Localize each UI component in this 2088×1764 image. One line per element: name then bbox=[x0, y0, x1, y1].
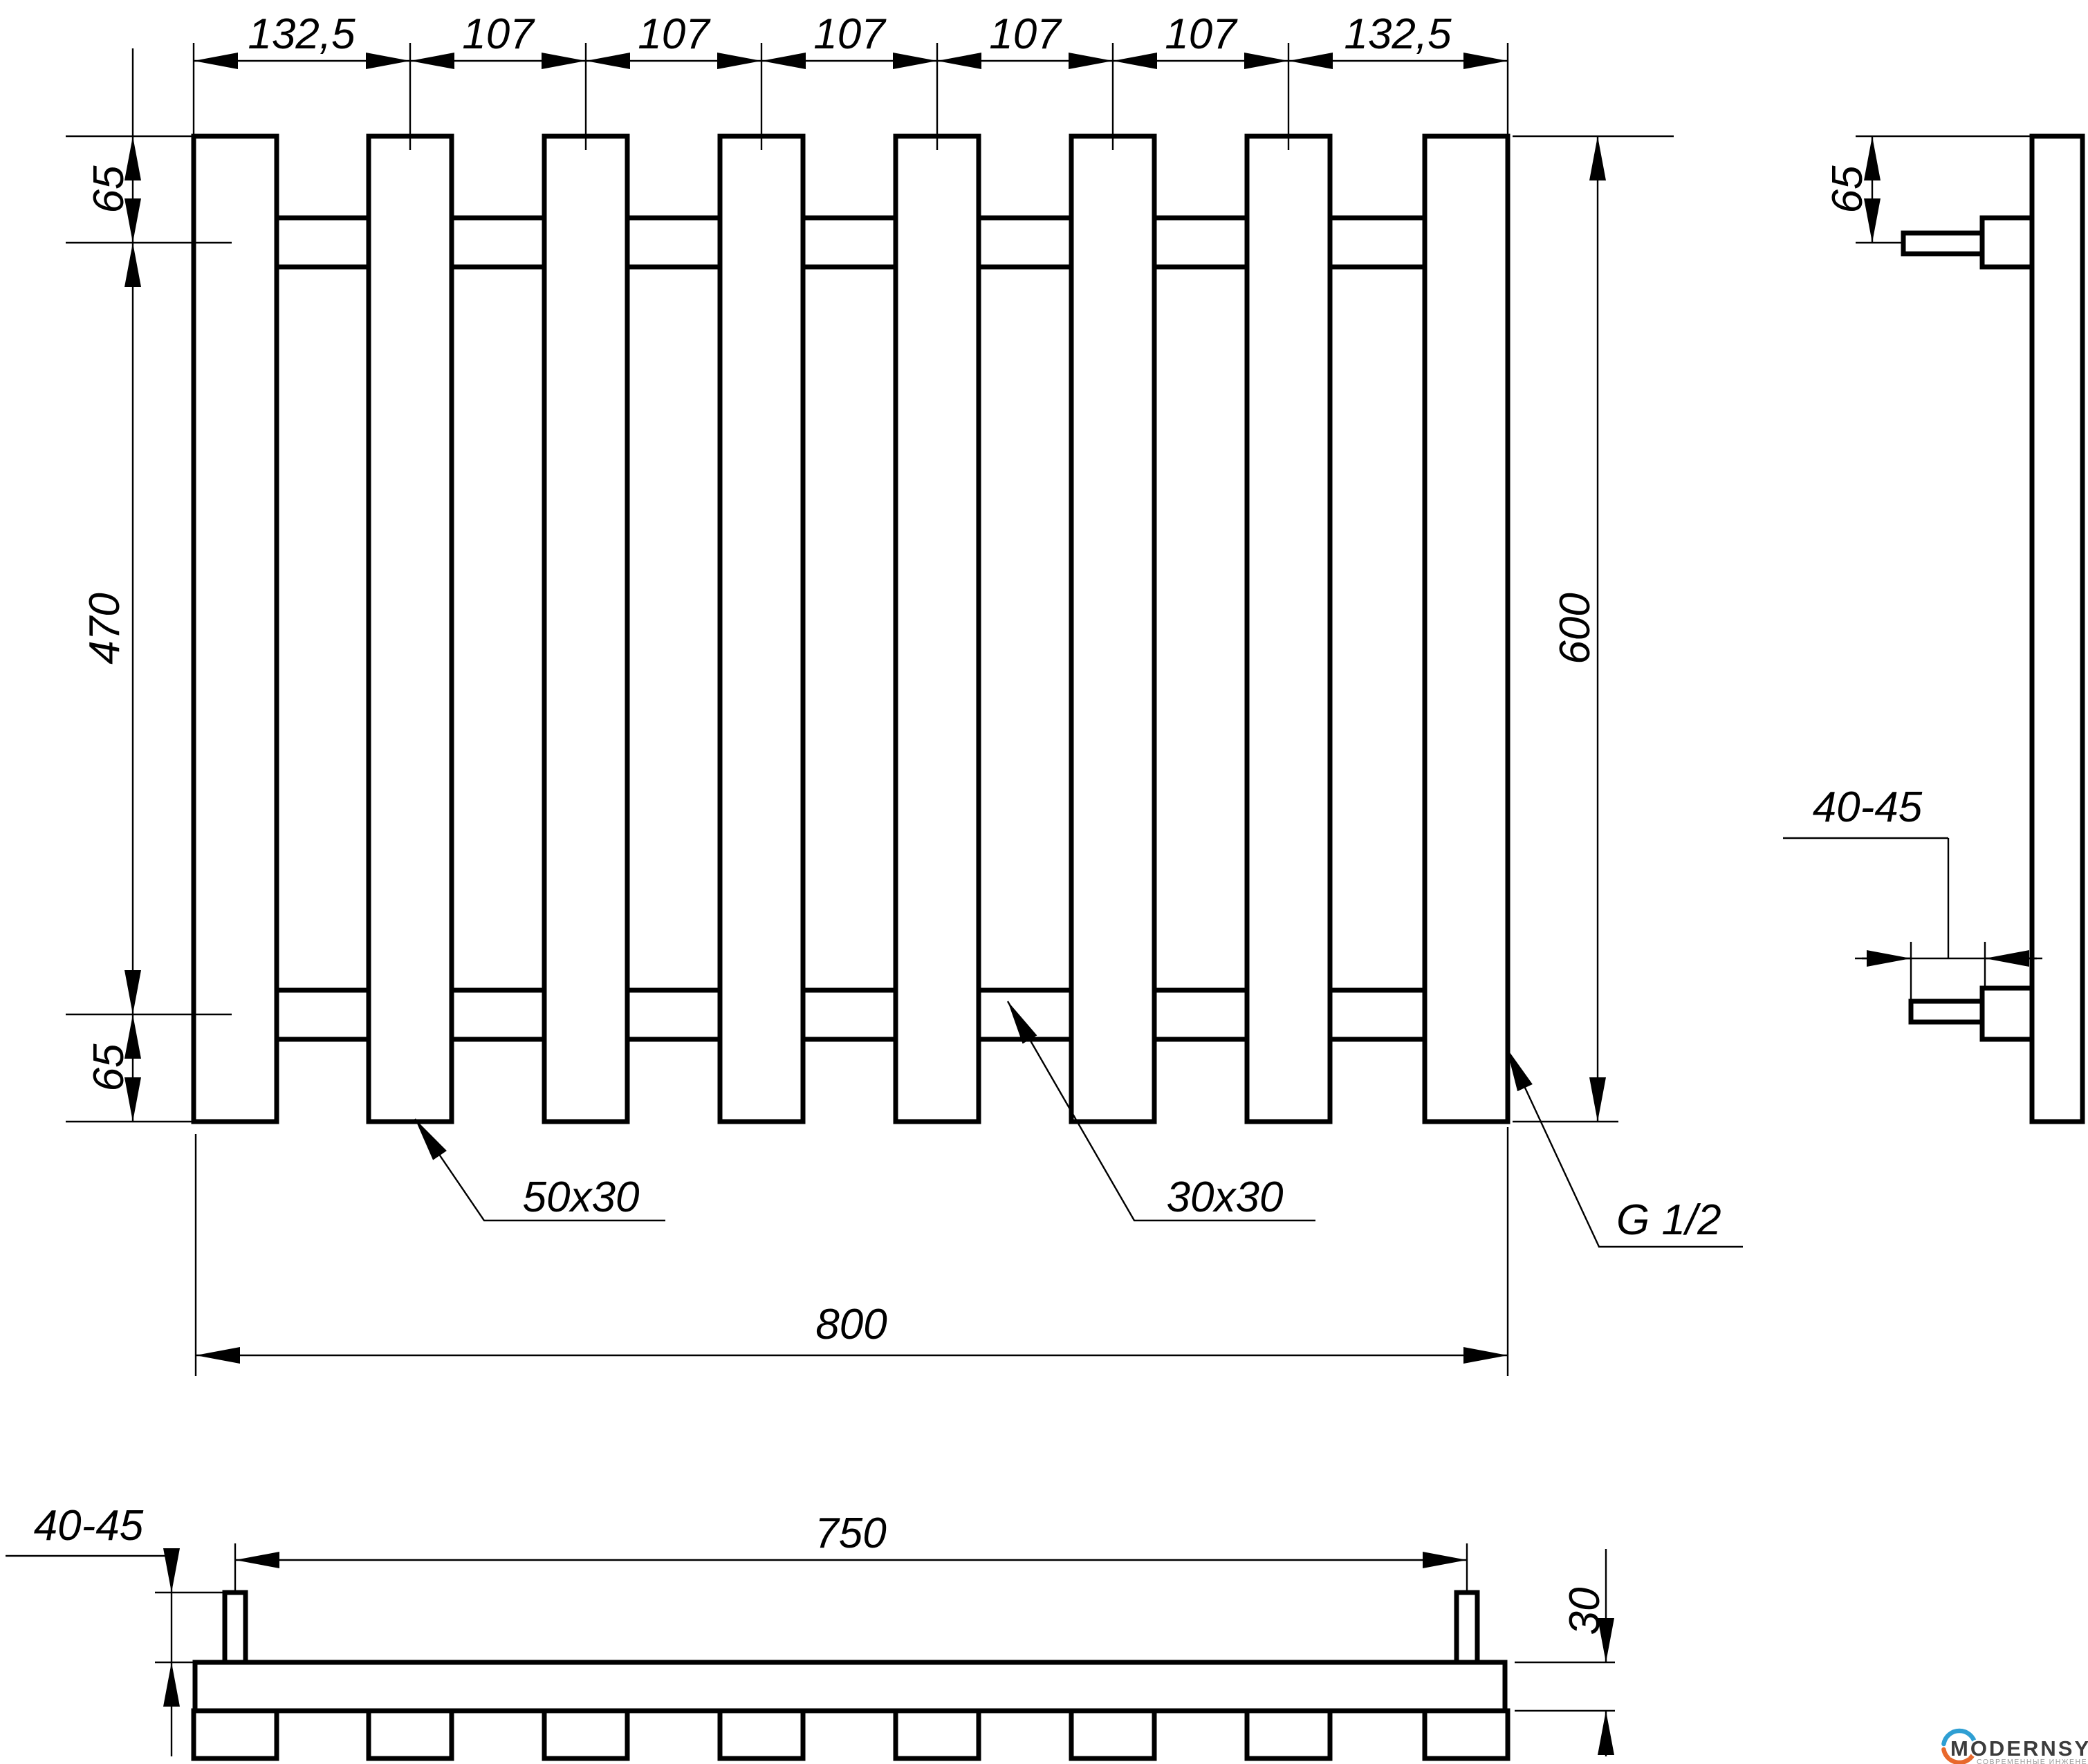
dim-side-40-45: 40-45 bbox=[1783, 783, 2042, 1000]
front-bar-2 bbox=[369, 136, 452, 1122]
dim-label-600: 600 bbox=[1551, 593, 1599, 664]
dim-label-132-5-right: 132,5 bbox=[1344, 10, 1452, 58]
front-bar-3 bbox=[544, 136, 627, 1122]
front-bar-7 bbox=[1247, 136, 1330, 1122]
front-bar-1 bbox=[194, 136, 277, 1122]
side-bottom-pipe bbox=[1911, 1001, 1984, 1022]
dim-height-600: 600 bbox=[1513, 136, 1674, 1122]
bottom-bar-stub-7 bbox=[1247, 1711, 1330, 1758]
drawing-page: 132,5 107 107 107 107 107 132,5 65 470 6… bbox=[0, 0, 2088, 1764]
side-view bbox=[1903, 136, 2082, 1122]
bottom-rail bbox=[195, 1662, 1505, 1711]
logo: MODERNSYS СОВРЕМЕННЫЕ ИНЖЕНЕРНЫЕ СИСТЕМЫ bbox=[1943, 1731, 2088, 1764]
side-top-pipe bbox=[1903, 233, 1984, 254]
dim-label-side-65: 65 bbox=[1824, 165, 1872, 213]
bottom-bar-stub-6 bbox=[1071, 1711, 1154, 1758]
dim-label-30: 30 bbox=[1561, 1588, 1609, 1635]
label-rail-profile-30x30: 30x30 bbox=[1167, 1173, 1284, 1221]
label-thread-g12: G 1/2 bbox=[1616, 1196, 1721, 1244]
technical-drawing: 132,5 107 107 107 107 107 132,5 65 470 6… bbox=[0, 0, 2088, 1764]
dim-label-107-5: 107 bbox=[1165, 10, 1238, 58]
dim-label-65-bottom: 65 bbox=[85, 1043, 133, 1091]
label-bar-profile-50x30: 50x30 bbox=[523, 1173, 640, 1221]
front-bar-6 bbox=[1071, 136, 1154, 1122]
side-bar bbox=[2032, 136, 2082, 1122]
dim-label-side-40-45: 40-45 bbox=[1813, 783, 1923, 831]
dim-label-65-top: 65 bbox=[85, 165, 133, 213]
bottom-view bbox=[194, 1593, 1508, 1758]
bottom-left-pipe bbox=[225, 1593, 246, 1664]
bottom-bar-stub-8 bbox=[1425, 1711, 1508, 1758]
dim-label-800: 800 bbox=[815, 1301, 887, 1348]
side-top-fitting bbox=[1982, 218, 2032, 267]
dim-label-750: 750 bbox=[815, 1510, 886, 1557]
bottom-bar-stub-4 bbox=[720, 1711, 803, 1758]
dim-width-800: 800 bbox=[196, 1127, 1508, 1376]
dim-label-107-1: 107 bbox=[462, 10, 535, 58]
logo-tagline-text: СОВРЕМЕННЫЕ ИНЖЕНЕРНЫЕ СИСТЕМЫ bbox=[1977, 1758, 2088, 1764]
front-view bbox=[194, 136, 1508, 1122]
bottom-right-pipe bbox=[1457, 1593, 1477, 1664]
bottom-bar-stub-2 bbox=[369, 1711, 452, 1758]
dim-label-107-3: 107 bbox=[813, 10, 887, 58]
dim-label-bottom-40-45: 40-45 bbox=[34, 1502, 144, 1550]
bottom-bar-stub-5 bbox=[896, 1711, 979, 1758]
bottom-bar-stub-3 bbox=[544, 1711, 627, 1758]
dim-top-chain: 132,5 107 107 107 107 107 132,5 bbox=[194, 10, 1508, 150]
dim-bottom-750: 750 bbox=[235, 1510, 1467, 1590]
dim-label-107-2: 107 bbox=[638, 10, 711, 58]
dim-label-107-4: 107 bbox=[989, 10, 1062, 58]
front-bar-5 bbox=[896, 136, 979, 1122]
front-bar-8 bbox=[1425, 136, 1508, 1122]
logo-brand-text: MODERNSYS bbox=[1950, 1736, 2088, 1761]
dim-label-132-5-left: 132,5 bbox=[248, 10, 355, 58]
side-bottom-fitting bbox=[1982, 988, 2032, 1039]
bottom-bar-stub-1 bbox=[194, 1711, 277, 1758]
front-bar-4 bbox=[720, 136, 803, 1122]
dim-label-470: 470 bbox=[81, 593, 129, 664]
dim-bottom-30: 30 bbox=[1515, 1549, 1615, 1756]
